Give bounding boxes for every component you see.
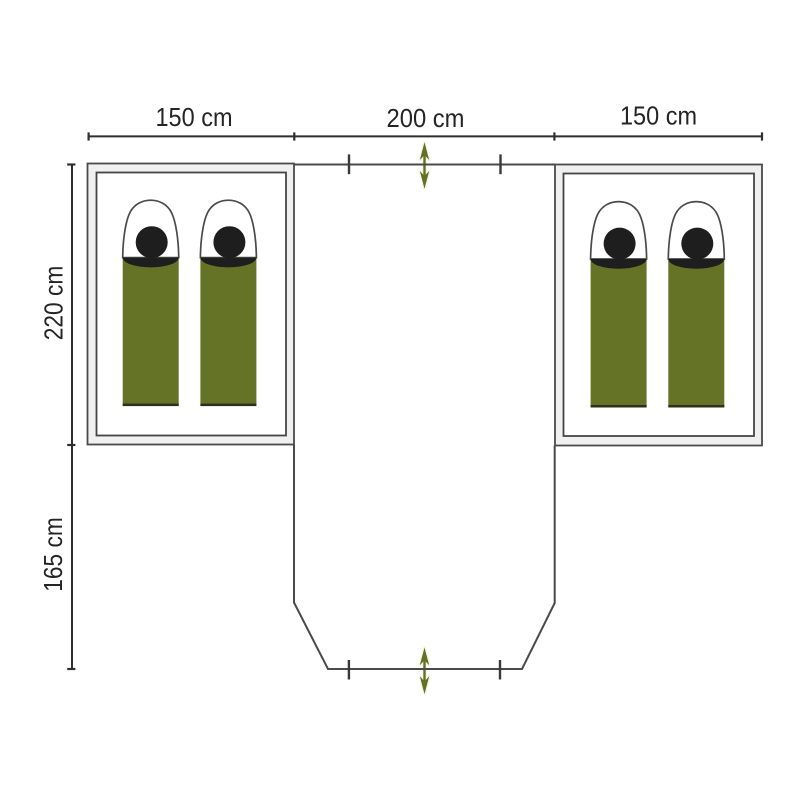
svg-text:200 cm: 200 cm [387,103,465,133]
svg-text:220 cm: 220 cm [39,266,69,341]
svg-text:150 cm: 150 cm [156,102,233,132]
svg-text:150 cm: 150 cm [620,101,697,131]
svg-text:165 cm: 165 cm [38,517,68,592]
